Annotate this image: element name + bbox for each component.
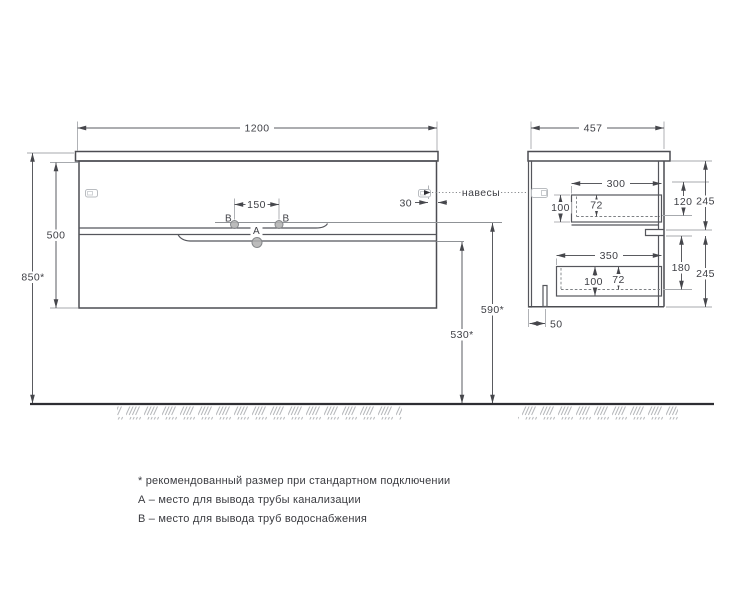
lower-drawer-inner-dim: 72 bbox=[612, 274, 624, 286]
upper-drawer-depth-dim: 300 bbox=[607, 178, 626, 190]
side-back-panel bbox=[529, 161, 532, 307]
footnote-point-b: В – место для вывода труб водоснабжения bbox=[138, 513, 367, 525]
lower-drawer-depth-dim: 350 bbox=[600, 250, 619, 262]
mount-height-dim: 850* bbox=[21, 272, 44, 284]
side-countertop bbox=[528, 152, 670, 162]
lower-front-height-dim: 245 bbox=[696, 268, 715, 280]
lower-drawer-height-dim: 100 bbox=[584, 276, 603, 288]
lower-clearance-dim: 180 bbox=[672, 262, 691, 274]
front-height-dim: 500 bbox=[47, 230, 66, 242]
upper-clearance-dim: 120 bbox=[674, 196, 693, 208]
front-groove-upper bbox=[79, 224, 328, 229]
upper-drawer-inner-dim: 72 bbox=[590, 200, 602, 212]
upper-drawer-box bbox=[572, 195, 662, 222]
diagram-canvas: 1200 500 850* 150 30 590* 530* В В А нав… bbox=[0, 0, 739, 600]
front-countertop bbox=[76, 152, 439, 162]
hangers-label: навесы bbox=[462, 187, 500, 199]
upper-front-height-dim: 245 bbox=[696, 196, 715, 208]
back-offset-dim: 50 bbox=[550, 319, 562, 331]
drain-height-dim: 530* bbox=[450, 329, 473, 341]
front-groove-lower bbox=[178, 235, 437, 242]
hanger-icon-left bbox=[86, 190, 98, 198]
drain-point-a bbox=[252, 238, 262, 248]
front-width-dim: 1200 bbox=[245, 123, 270, 135]
technical-drawing: 1200 500 850* 150 30 590* 530* В В А нав… bbox=[0, 0, 739, 600]
lower-drawer-box bbox=[557, 267, 662, 297]
hanger-offset-dim: 30 bbox=[400, 198, 412, 210]
side-handle-notch bbox=[646, 230, 665, 236]
floor-hatch-left bbox=[117, 407, 402, 420]
side-back-strip bbox=[543, 286, 547, 307]
side-view: 457 300 100 72 120 245 350 100 72 180 24… bbox=[528, 122, 719, 331]
label-b-left: В bbox=[225, 214, 232, 225]
supply-height-dim: 590* bbox=[481, 304, 504, 316]
floor-hatch-right bbox=[518, 407, 678, 420]
floor bbox=[30, 404, 714, 420]
hanger-bracket-icon bbox=[532, 189, 548, 198]
hangers-callout: навесы bbox=[424, 187, 538, 199]
front-view: 1200 500 850* 150 30 590* 530* В В А bbox=[20, 122, 507, 404]
footnote-point-a: А – место для вывода трубы канализации bbox=[138, 494, 361, 506]
label-b-right: В bbox=[282, 214, 289, 225]
supply-spacing-dim: 150 bbox=[247, 199, 266, 211]
upper-drawer-height-dim: 100 bbox=[551, 202, 570, 214]
footnote-asterisk: * рекомендованный размер при стандартном… bbox=[138, 475, 450, 487]
side-depth-dim: 457 bbox=[584, 123, 603, 135]
label-a: А bbox=[253, 226, 260, 237]
